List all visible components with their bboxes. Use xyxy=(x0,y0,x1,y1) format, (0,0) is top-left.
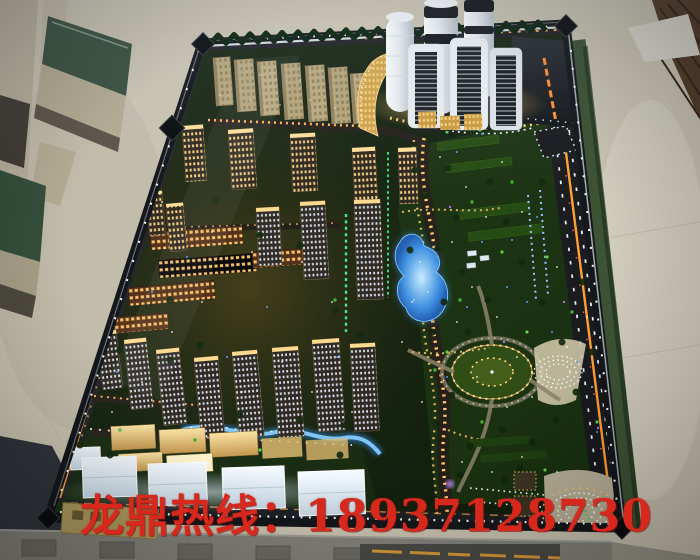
framed-glass-tower xyxy=(490,48,522,130)
hotline-text: 龙鼎热线：18937128730 xyxy=(80,480,653,544)
photo-architectural-model: 龙鼎热线：18937128730 xyxy=(0,0,700,560)
scene xyxy=(0,0,700,560)
